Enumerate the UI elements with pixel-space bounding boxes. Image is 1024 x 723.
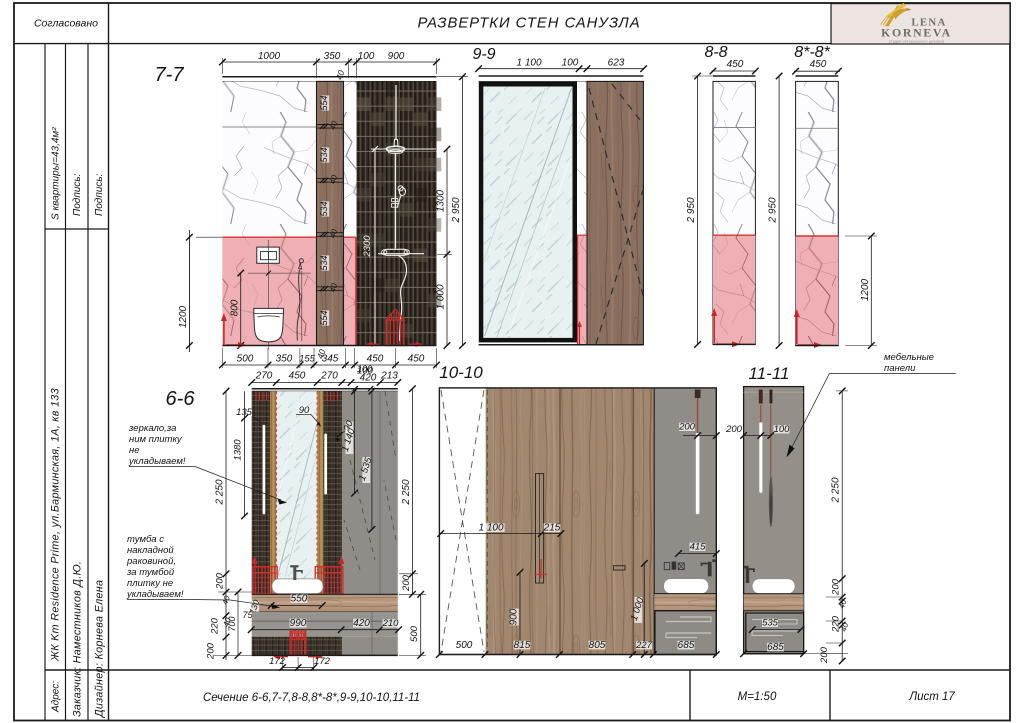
- svg-text:плитку не: плитку не: [127, 578, 173, 589]
- svg-text:S квартиры=43,4м²: S квартиры=43,4м²: [51, 127, 62, 220]
- svg-text:800: 800: [230, 299, 241, 316]
- svg-text:2 950: 2 950: [768, 197, 779, 223]
- svg-text:345: 345: [322, 354, 339, 365]
- svg-text:450: 450: [408, 354, 425, 365]
- svg-text:Лист 17: Лист 17: [908, 691, 955, 703]
- svg-text:11-11: 11-11: [749, 364, 790, 383]
- svg-text:200: 200: [678, 422, 696, 433]
- svg-text:534: 534: [319, 147, 329, 162]
- svg-text:Адрес:: Адрес:: [51, 681, 62, 713]
- svg-text:350: 350: [276, 354, 293, 365]
- svg-text:укладываем!: укладываем!: [128, 456, 186, 467]
- svg-text:420: 420: [353, 618, 370, 629]
- svg-text:100: 100: [562, 58, 579, 69]
- svg-text:Подпись:: Подпись:: [72, 173, 83, 216]
- svg-text:420: 420: [360, 373, 377, 384]
- svg-text:172: 172: [269, 656, 286, 667]
- svg-text:зеркало,за: зеркало,за: [128, 423, 176, 434]
- svg-text:200: 200: [401, 574, 412, 592]
- svg-text:не: не: [129, 445, 140, 456]
- svg-text:450: 450: [289, 371, 306, 382]
- svg-text:2 250: 2 250: [831, 477, 842, 503]
- svg-text:ним плитку: ним плитку: [129, 434, 183, 445]
- svg-text:200: 200: [819, 646, 830, 664]
- svg-text:тумба с: тумба с: [127, 534, 164, 545]
- svg-text:1200: 1200: [860, 278, 871, 301]
- svg-text:213: 213: [380, 371, 398, 382]
- svg-text:7-7: 7-7: [155, 64, 185, 86]
- svg-text:студия интерьерного дизайна: студия интерьерного дизайна: [889, 38, 945, 43]
- svg-text:550: 550: [291, 594, 308, 605]
- svg-text:270: 270: [255, 371, 273, 382]
- svg-text:Дизайнер: Корнева Елена: Дизайнер: Корнева Елена: [94, 580, 106, 718]
- svg-text:200: 200: [725, 424, 743, 435]
- svg-text:Подпись:: Подпись:: [94, 173, 105, 216]
- svg-text:200: 200: [215, 572, 226, 590]
- svg-text:Сечение 6-6,7-7,8-8,8*-8*,9-9,: Сечение 6-6,7-7,8-8,8*-8*,9-9,10-10,11-1…: [203, 692, 420, 704]
- svg-text:900: 900: [388, 51, 405, 62]
- svg-text:450: 450: [367, 354, 384, 365]
- svg-text:2 250: 2 250: [401, 479, 412, 505]
- svg-text:554: 554: [319, 95, 329, 110]
- svg-text:220: 220: [210, 617, 221, 635]
- svg-text:623: 623: [608, 58, 625, 69]
- svg-text:панели: панели: [884, 363, 916, 374]
- svg-text:534: 534: [319, 201, 329, 216]
- svg-text:РАЗВЕРТКИ СТЕН САНУЗЛА: РАЗВЕРТКИ СТЕН САНУЗЛА: [417, 16, 640, 32]
- svg-text:700: 700: [227, 616, 237, 631]
- svg-text:535: 535: [762, 618, 779, 629]
- svg-text:9-9: 9-9: [472, 46, 495, 63]
- svg-text:990: 990: [290, 618, 307, 629]
- svg-text:500: 500: [456, 640, 473, 651]
- svg-text:2300: 2300: [362, 235, 373, 258]
- svg-text:450: 450: [810, 59, 827, 70]
- svg-text:227: 227: [635, 640, 653, 651]
- svg-text:1300: 1300: [436, 189, 447, 212]
- svg-text:KORNEVA: KORNEVA: [881, 25, 952, 39]
- svg-text:200: 200: [206, 642, 217, 660]
- svg-text:2 950: 2 950: [451, 197, 462, 223]
- svg-text:155: 155: [299, 354, 316, 365]
- svg-text:1 100: 1 100: [516, 58, 541, 69]
- svg-text:раковиной,: раковиной,: [126, 556, 176, 567]
- svg-text:172: 172: [314, 656, 331, 667]
- svg-text:6-6: 6-6: [166, 388, 196, 410]
- svg-text:1 100: 1 100: [478, 523, 503, 534]
- svg-text:1000: 1000: [258, 51, 281, 62]
- svg-text:900: 900: [509, 608, 520, 625]
- svg-text:Заказчик: Наместников Д.Ю.: Заказчик: Наместников Д.Ю.: [72, 561, 84, 717]
- svg-text:815: 815: [514, 640, 531, 651]
- svg-text:534: 534: [319, 255, 329, 270]
- svg-text:М=1:50: М=1:50: [738, 691, 777, 703]
- svg-text:2 950: 2 950: [686, 197, 697, 223]
- svg-text:100: 100: [774, 424, 791, 435]
- svg-text:10-10: 10-10: [439, 363, 483, 382]
- svg-text:350: 350: [324, 51, 341, 62]
- svg-text:1380: 1380: [233, 439, 244, 461]
- svg-text:685: 685: [678, 640, 695, 651]
- svg-text:100: 100: [358, 51, 375, 62]
- svg-text:270: 270: [320, 371, 338, 382]
- svg-text:8-8: 8-8: [704, 44, 727, 61]
- svg-text:500: 500: [409, 625, 420, 642]
- svg-text:500: 500: [237, 354, 254, 365]
- svg-text:укладываем!: укладываем!: [126, 589, 184, 600]
- svg-text:Согласовано: Согласовано: [34, 18, 98, 30]
- svg-text:215: 215: [543, 523, 561, 534]
- svg-text:805: 805: [589, 640, 606, 651]
- svg-text:554: 554: [319, 310, 329, 325]
- svg-text:накладной: накладной: [127, 545, 174, 556]
- svg-text:450: 450: [727, 59, 744, 70]
- svg-text:200: 200: [831, 578, 842, 596]
- svg-text:1200: 1200: [178, 305, 189, 328]
- svg-text:2 250: 2 250: [215, 479, 226, 505]
- svg-text:мебельные: мебельные: [884, 352, 934, 363]
- svg-text:685: 685: [767, 642, 784, 653]
- svg-text:1 000: 1 000: [436, 284, 447, 309]
- svg-text:ЖК Km Residence Prime, ул.Барм: ЖК Km Residence Prime, ул.Барминская, 1А…: [50, 388, 62, 662]
- svg-text:210: 210: [382, 618, 400, 629]
- svg-text:415: 415: [690, 542, 707, 553]
- svg-text:за тумбой: за тумбой: [126, 567, 175, 578]
